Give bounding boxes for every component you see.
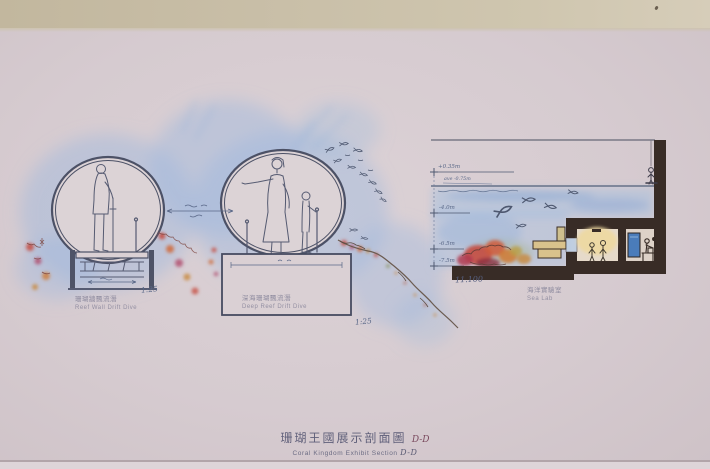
title-section-ref: D-D <box>412 435 430 445</box>
drawing-title-en: Coral Kingdom Exhibit Section D-D <box>0 448 710 457</box>
scale-note-left: 1:25 <box>141 284 159 294</box>
label-sea-lab-en: Sea Lab <box>527 295 562 303</box>
label-reef-wall-drift-dive: 珊瑚牆飄流潛 Reef Wall Drift Dive <box>75 296 137 312</box>
label-sea-lab-cn: 海洋實驗室 <box>527 287 562 295</box>
level-low2: -7.5m <box>439 258 455 264</box>
label-deep-reef-drift-dive: 深海珊瑚飄流潛 Deep Reef Drift Dive <box>242 295 307 311</box>
photographed-architectural-sketch: 珊瑚牆飄流潛 Reef Wall Drift Dive 1:25 深海珊瑚飄流潛… <box>0 0 710 469</box>
ceiling-light-icon <box>592 229 601 232</box>
level-low1: -6.5m <box>439 241 455 247</box>
photo-bottom-border <box>0 462 710 469</box>
level-average: ave -0.75m <box>444 177 471 182</box>
total-depth-note: 11.100 <box>455 275 483 285</box>
lab-viewing-window <box>566 238 577 252</box>
label-reef-wall-cn: 珊瑚牆飄流潛 <box>75 296 137 304</box>
scale-note-middle: 1:25 <box>355 316 373 326</box>
drawing-title-block: 珊瑚王國展示剖面圖 D-D Coral Kingdom Exhibit Sect… <box>0 429 710 457</box>
label-deep-reef-en: Deep Reef Drift Dive <box>242 303 307 311</box>
title-section-ref-en: D-D <box>400 448 417 457</box>
label-deep-reef-cn: 深海珊瑚飄流潛 <box>242 295 307 303</box>
sea-lab-section <box>430 140 666 280</box>
level-mid: -4.0m <box>439 205 455 211</box>
title-en-text: Coral Kingdom Exhibit Section <box>292 450 397 457</box>
title-cn-text: 珊瑚王國展示剖面圖 <box>281 431 407 445</box>
label-reef-wall-en: Reef Wall Drift Dive <box>75 304 137 312</box>
level-top: +0.35m <box>438 164 460 170</box>
section-drawing <box>0 0 710 469</box>
drawing-title-cn: 珊瑚王國展示剖面圖 D-D <box>0 429 710 446</box>
label-sea-lab: 海洋實驗室 Sea Lab <box>527 287 562 303</box>
